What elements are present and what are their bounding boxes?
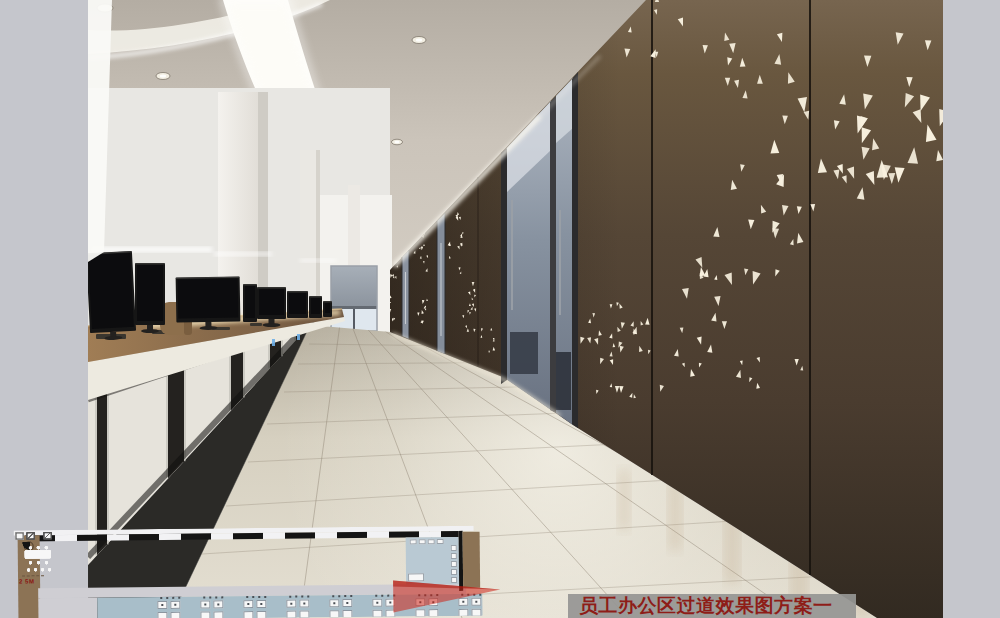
led-accent xyxy=(297,334,300,340)
monitor-screen xyxy=(311,298,320,314)
glass-frame xyxy=(501,148,507,384)
monitor-screen xyxy=(259,289,284,315)
interior-furniture xyxy=(556,352,571,410)
monitor xyxy=(243,284,257,322)
presentation-slide: 2 5M xyxy=(0,0,1000,618)
monitor xyxy=(135,263,165,333)
corridor-rendering xyxy=(88,0,943,618)
floor-plan-inset: 2 5M xyxy=(14,525,501,618)
keyboard xyxy=(250,323,262,326)
caption-bar: 员工办公区过道效果图方案一 xyxy=(568,594,856,618)
downlight-lamp xyxy=(395,141,400,143)
roller-blind xyxy=(331,266,377,308)
office-cove-strip xyxy=(300,259,336,262)
wall-triangle xyxy=(655,0,659,2)
downlight-lamp xyxy=(160,74,166,77)
monitor xyxy=(88,251,136,341)
monitor-base xyxy=(263,323,281,327)
far-column-shade xyxy=(316,150,320,312)
glass-slot xyxy=(437,213,445,354)
monitor xyxy=(309,296,322,318)
led-accent xyxy=(272,339,275,346)
rendering-scene xyxy=(88,0,943,618)
office-cove-strip xyxy=(214,252,272,256)
glass-mullion xyxy=(550,96,556,413)
monitor-screen xyxy=(178,278,239,318)
office-cove-strip xyxy=(92,247,212,252)
view-direction-arrow xyxy=(14,525,501,618)
monitor-base xyxy=(141,329,159,333)
glass-slot xyxy=(402,250,409,339)
monitor xyxy=(287,291,308,318)
monitor-screen xyxy=(245,286,255,318)
downlight-lamp xyxy=(416,38,422,41)
monitor-screen xyxy=(137,265,163,321)
column-shade xyxy=(258,92,268,314)
monitor-screen xyxy=(325,303,330,313)
monitor-screen xyxy=(289,293,306,314)
door-handle xyxy=(511,200,513,310)
monitor xyxy=(323,301,332,317)
floor-warm-reflection xyxy=(618,470,630,530)
interior-furniture xyxy=(510,332,538,374)
glass-frame xyxy=(572,72,578,428)
caption-text: 员工办公区过道效果图方案一 xyxy=(579,593,833,618)
door-handle xyxy=(559,210,561,315)
monitor-screen xyxy=(88,253,134,329)
